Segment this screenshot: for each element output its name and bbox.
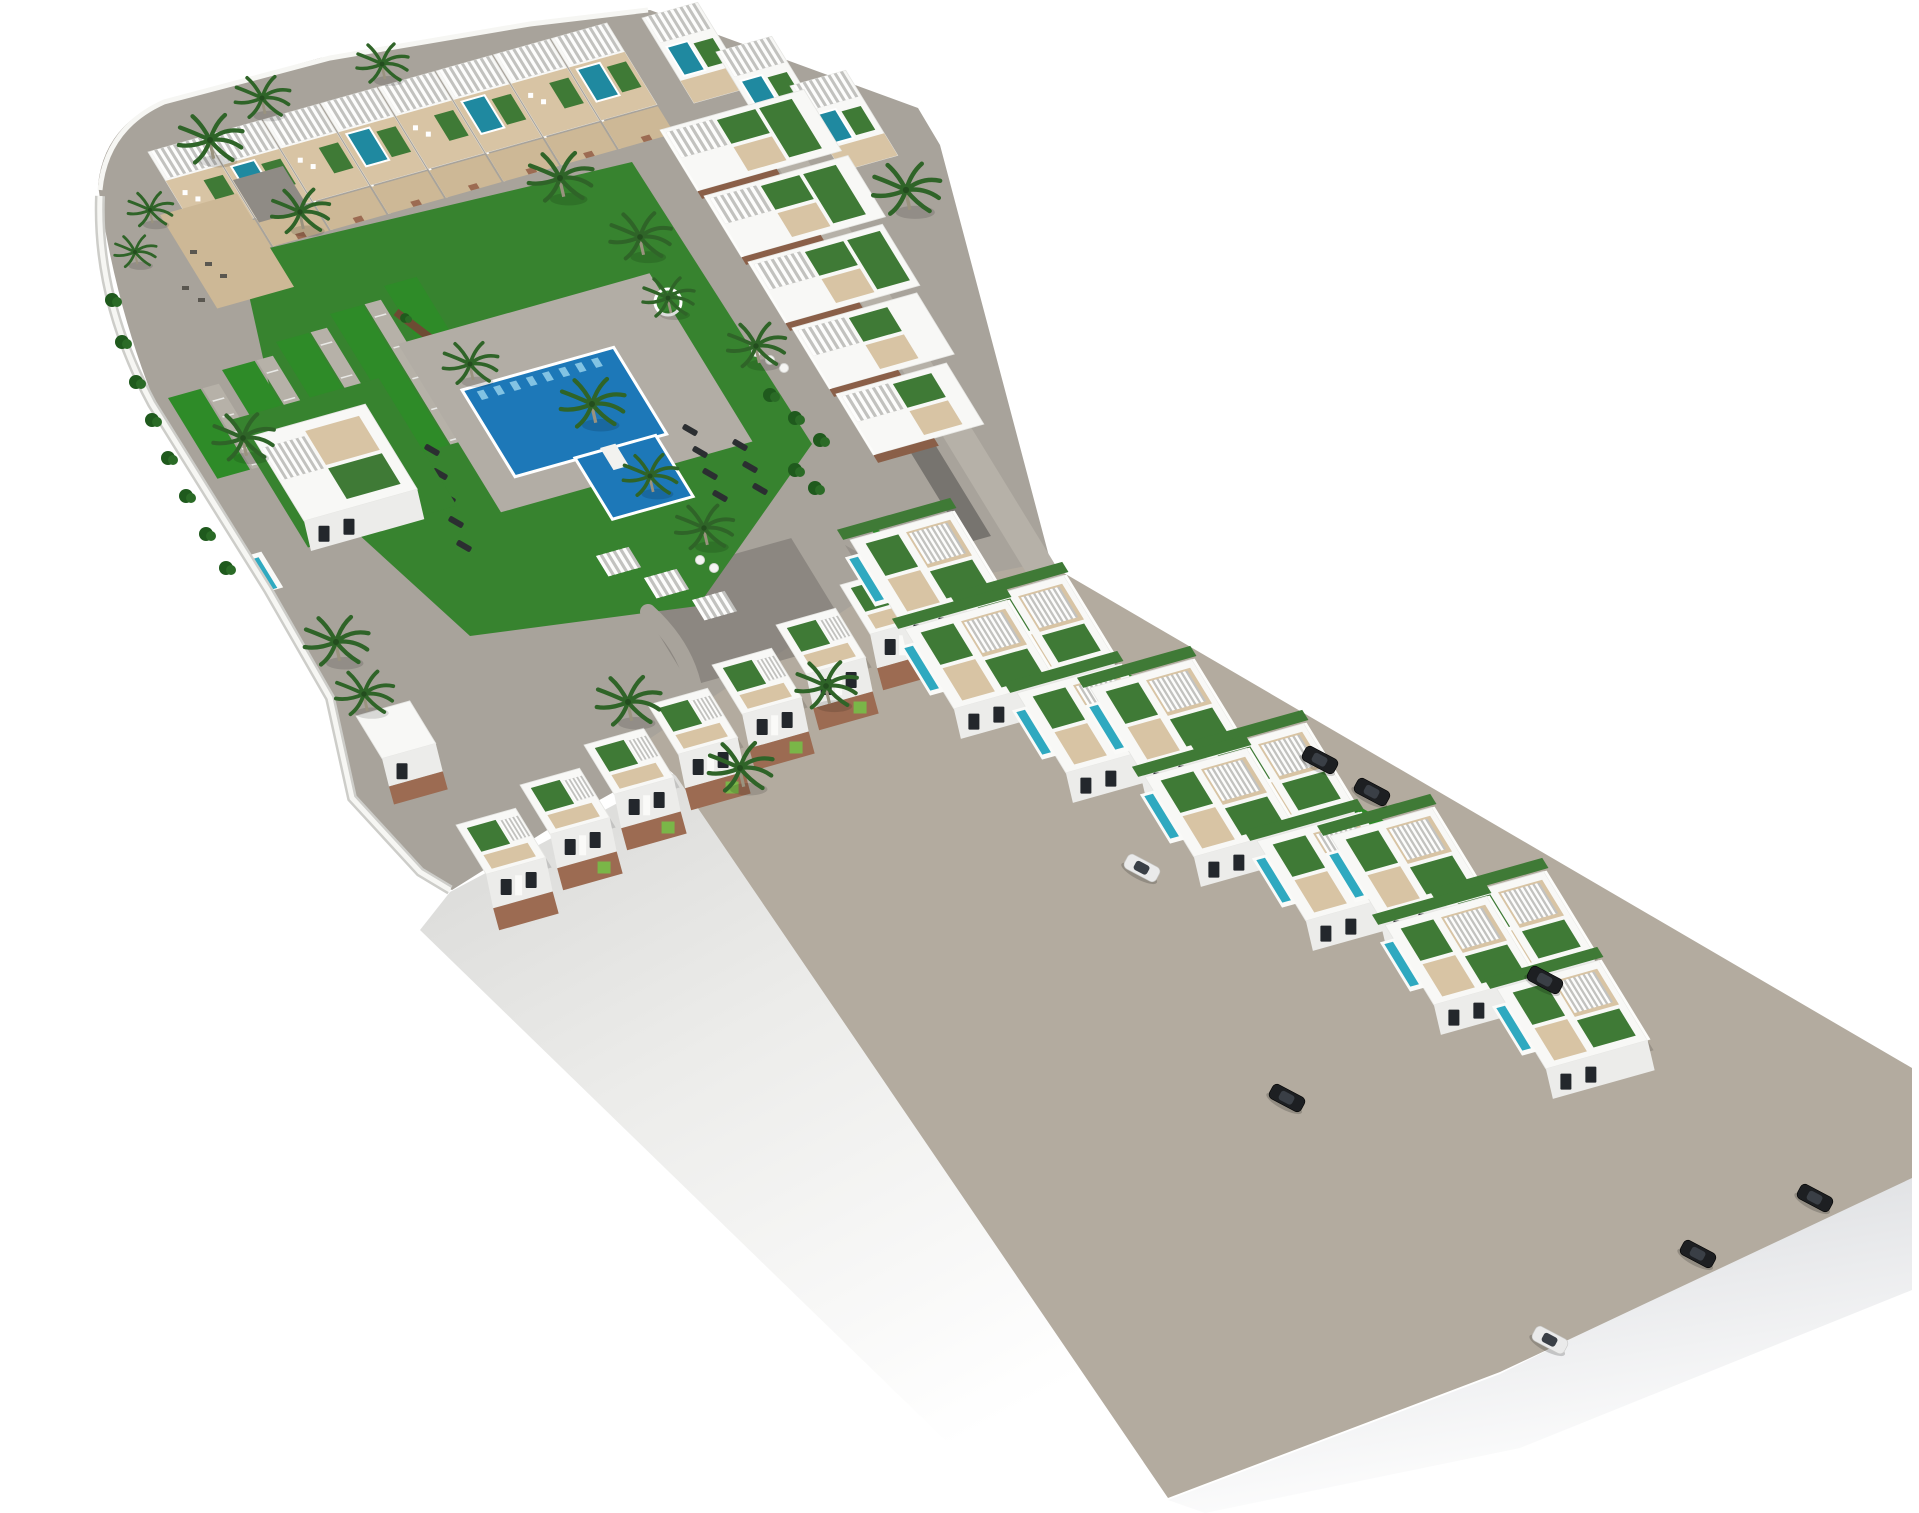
front-lawn [598,862,611,874]
window [501,879,512,895]
round-lounger [696,556,705,565]
terrace-furniture [311,164,316,169]
bush [219,561,236,575]
front-lawn [854,702,867,714]
stairs [643,795,650,815]
window [629,799,640,815]
terrace-furniture [205,262,212,266]
front-lawn [662,822,675,834]
terrace-furniture [198,298,205,302]
terrace-furniture [528,93,533,98]
window [1320,926,1331,942]
window [885,639,896,655]
masterplan-svg [0,0,1919,1513]
window [968,714,979,730]
bush [161,451,178,465]
window [846,672,857,688]
window [1560,1074,1571,1090]
terrace-furniture [220,274,227,278]
window [654,792,665,808]
window [1473,1003,1484,1019]
window [343,519,354,535]
bush [179,489,196,503]
terrace-furniture [182,286,189,290]
window [1345,919,1356,935]
window [993,707,1004,723]
window [693,759,704,775]
scene-content [98,2,1912,1513]
window [757,719,768,735]
stairs [771,715,778,735]
window [1105,771,1116,787]
masterplan-render [0,0,1919,1513]
window [590,832,601,848]
round-lounger [710,564,719,573]
window [319,526,330,542]
window [1448,1010,1459,1026]
window [782,712,793,728]
window [526,872,537,888]
masterplan-canvas [0,0,1919,1513]
window [1585,1067,1596,1083]
bush [199,527,216,541]
terrace-furniture [413,125,418,130]
window [1208,862,1219,878]
window [1233,855,1244,871]
bush [105,293,122,307]
terrace-furniture [298,158,303,163]
bush [115,335,132,349]
terrace-furniture [541,99,546,104]
terrace-furniture [190,250,197,254]
window [1080,778,1091,794]
stairs [579,835,586,855]
window [565,839,576,855]
round-lounger [780,364,789,373]
stairs [515,875,522,895]
window [397,763,408,779]
terrace-furniture [426,132,431,137]
terrace-furniture [183,190,188,195]
terrace-furniture [195,196,200,201]
front-lawn [790,742,803,754]
